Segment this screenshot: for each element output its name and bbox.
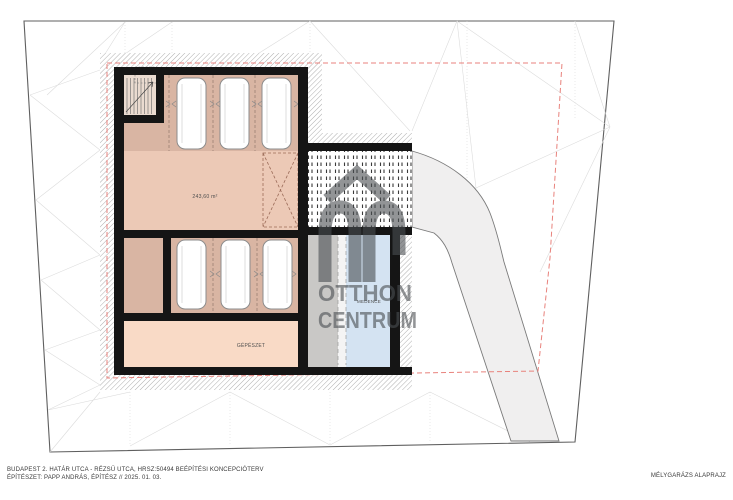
car-symbol	[262, 78, 291, 149]
parking-row-bottom	[177, 240, 292, 309]
parking-row-top	[177, 78, 291, 149]
car-symbol	[177, 240, 206, 309]
drawing-title: MÉLYGARÁZS ALAPRAJZ	[651, 472, 726, 479]
architect-credit: ÉPÍTÉSZET: PAPP ANDRÁS, ÉPÍTÉSZ // 2025.…	[7, 474, 162, 481]
car-symbol	[221, 240, 250, 309]
project-title: BUDAPEST 2. HATÁR UTCA - RÉZSŰ UTCA, HRS…	[7, 466, 264, 473]
watermark-text-line2: CENTRUM	[318, 307, 417, 333]
floor-plan-canvas: 243,60 m² GÉPÉSZET MEDENCE OTTHON CENTRU…	[0, 0, 733, 500]
car-symbol	[220, 78, 249, 149]
car-symbol	[263, 240, 292, 309]
driveway	[412, 151, 559, 441]
mechanical-room-label: GÉPÉSZET	[237, 342, 265, 349]
watermark-text-line1: OTTHON	[318, 280, 412, 306]
area-label: 243,60 m²	[192, 194, 217, 200]
car-symbol	[177, 78, 206, 149]
